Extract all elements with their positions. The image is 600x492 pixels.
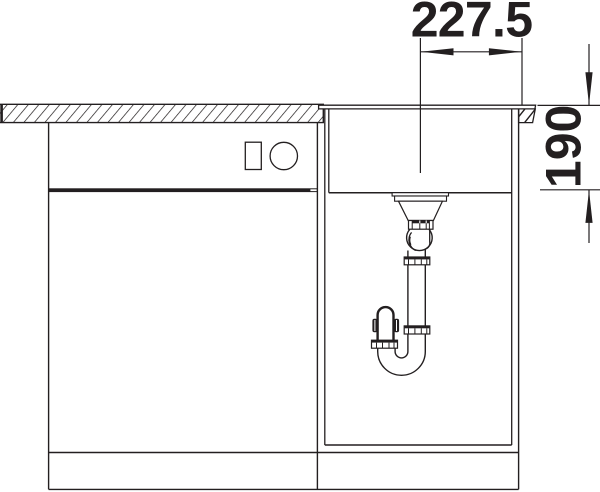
svg-text:227.5: 227.5 — [411, 0, 533, 48]
svg-text:190: 190 — [536, 105, 592, 188]
